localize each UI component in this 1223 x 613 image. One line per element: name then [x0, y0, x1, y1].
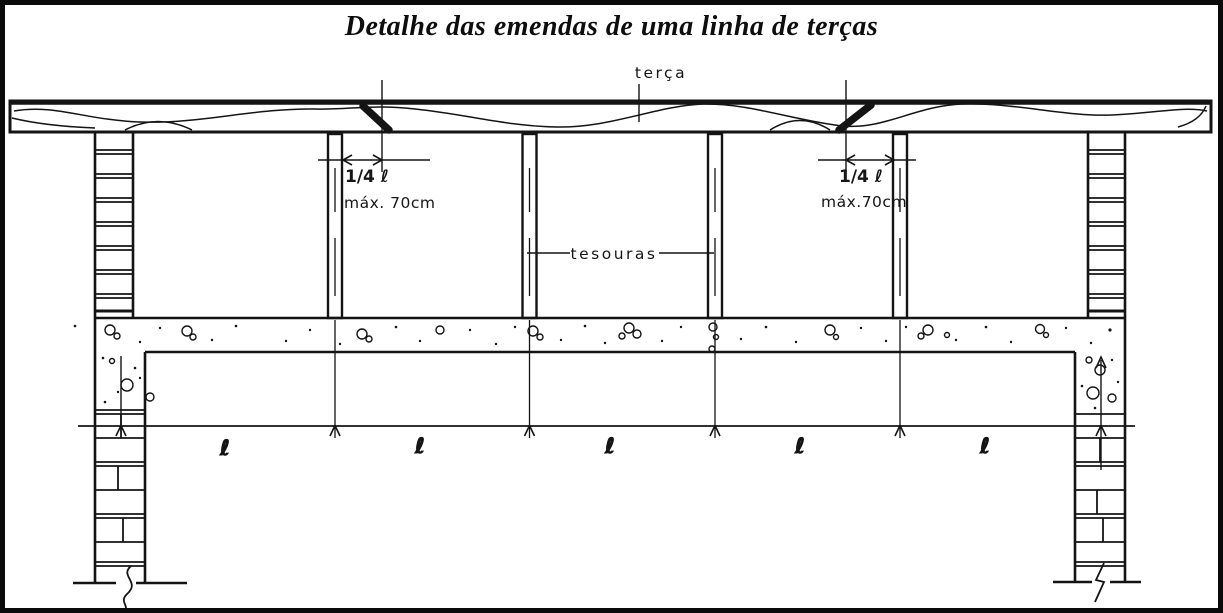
concrete-texture — [74, 323, 1120, 409]
dim-max-right: máx.70cm — [821, 193, 907, 211]
concrete-beam — [95, 318, 1125, 352]
brick-courses-right-upper — [1089, 150, 1124, 311]
masonry-column-right — [1053, 133, 1141, 602]
purlin-beam — [9, 101, 1212, 132]
dim-max-left: máx. 70cm — [344, 194, 435, 212]
dim-fraction-right: 1/4 ℓ — [839, 167, 883, 187]
break-zigzag-right — [1095, 563, 1104, 602]
span-label-1: ℓ — [219, 436, 230, 460]
break-squiggle-left — [124, 566, 132, 608]
column-centerline-left — [116, 356, 126, 436]
truss-center-dashes — [335, 168, 900, 312]
span-dimensions: ℓ ℓ ℓ ℓ ℓ — [78, 320, 1135, 460]
trusses-callout: tesouras — [527, 245, 714, 263]
span-label-3: ℓ — [604, 434, 615, 458]
diagram-page: Detalhe das emendas de uma linha de terç… — [0, 0, 1223, 613]
purlin-label: terça — [635, 64, 687, 82]
column-concrete-right — [1081, 357, 1120, 409]
span-label-5: ℓ — [979, 434, 990, 458]
ground-break-right — [1053, 563, 1141, 602]
span-label-4: ℓ — [794, 434, 805, 458]
masonry-column-left — [73, 133, 187, 608]
speckle-dots — [74, 325, 1112, 345]
span-extension-lines — [335, 320, 900, 438]
brick-courses-left-lower — [96, 410, 144, 566]
span-label-2: ℓ — [414, 434, 425, 458]
purlin-outline — [10, 101, 1211, 132]
truss-posts — [328, 134, 907, 318]
brick-courses-left-upper — [96, 150, 132, 311]
technical-drawing: terça tesouras 1/4 ℓ — [5, 5, 1218, 608]
brick-courses-right-lower — [1076, 414, 1124, 566]
ground-break-left — [73, 566, 187, 608]
trusses-label: tesouras — [571, 245, 658, 263]
dim-fraction-left: 1/4 ℓ — [345, 167, 389, 187]
